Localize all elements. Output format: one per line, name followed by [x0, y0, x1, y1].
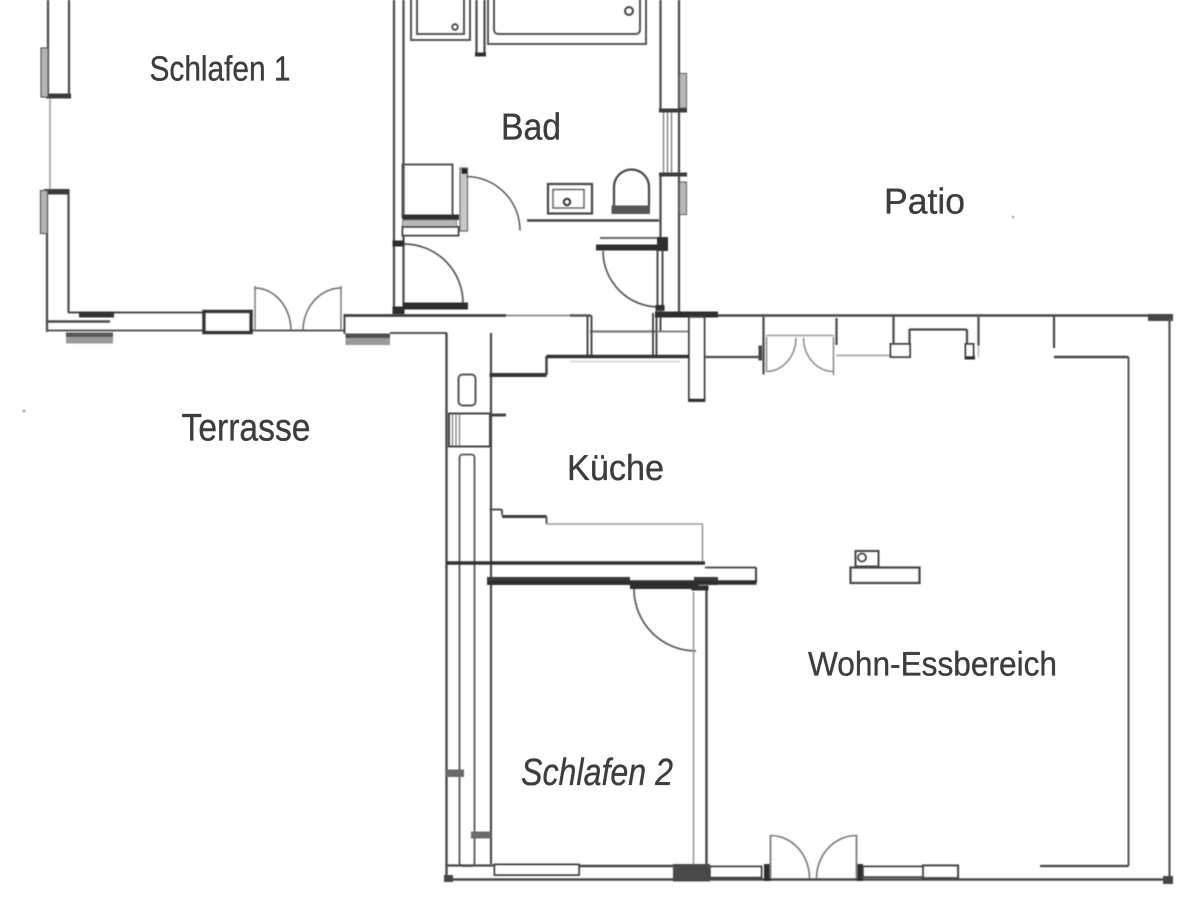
svg-text:Küche: Küche	[567, 447, 664, 488]
svg-text:Schlafen 2: Schlafen 2	[521, 752, 673, 794]
svg-text:Patio: Patio	[884, 181, 965, 222]
svg-text:Bad: Bad	[501, 106, 561, 148]
svg-text:Terrasse: Terrasse	[182, 407, 311, 450]
svg-text:Wohn-Essbereich: Wohn-Essbereich	[808, 646, 1057, 684]
svg-text:Schlafen 1: Schlafen 1	[150, 50, 291, 89]
